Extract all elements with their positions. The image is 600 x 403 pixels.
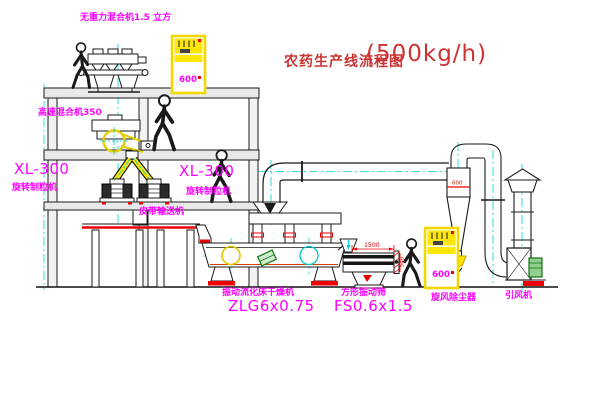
drawing-title-capacity: (500kg/h) <box>366 41 487 67</box>
person-top-floor <box>73 43 90 88</box>
fluid-bed-dryer-drawing <box>202 202 351 286</box>
granulator-right-name: 旋转制粒机 <box>186 188 231 197</box>
vibrating-sieve-drawing: 1500 540 <box>340 239 406 288</box>
exhaust-duct <box>263 161 449 203</box>
exhaust-stack-drawing <box>505 169 540 248</box>
person-ground <box>403 239 420 286</box>
high-speed-mixer-label: 高速混合机350 <box>38 109 102 118</box>
granulator-left-drawing <box>100 179 134 205</box>
sieve-width-dim: 1500 <box>364 242 380 249</box>
gravity-mixer-label: 无重力混合机1.5 立方 <box>80 14 171 23</box>
granulator-left-name: 旋转制粒机 <box>12 184 57 193</box>
cabinet1-600-text: 600 <box>179 75 197 85</box>
cabinet2-600-text: 600 <box>432 270 450 280</box>
cyclone-dim-text: 600 <box>452 181 463 187</box>
belt-conveyor-label: 皮带输送机 <box>139 208 184 217</box>
granulator-left-model: XL-300 <box>14 162 69 177</box>
fan-label: 引风机 <box>505 292 532 301</box>
sieve-model-label: FS0.6x1.5 <box>334 299 413 314</box>
granulator-right-model: XL-300 <box>179 164 234 179</box>
cyclone-label: 旋风除尘器 <box>431 294 476 303</box>
control-cabinet-1: 600 <box>172 36 205 93</box>
control-cabinet-2: 600 <box>425 228 458 288</box>
dryer-model-label: ZLG6x0.75 <box>228 299 315 314</box>
induced-draft-fan-drawing <box>485 248 546 286</box>
person-second-floor <box>154 95 174 149</box>
flowchart-canvas: 600 <box>0 0 600 403</box>
